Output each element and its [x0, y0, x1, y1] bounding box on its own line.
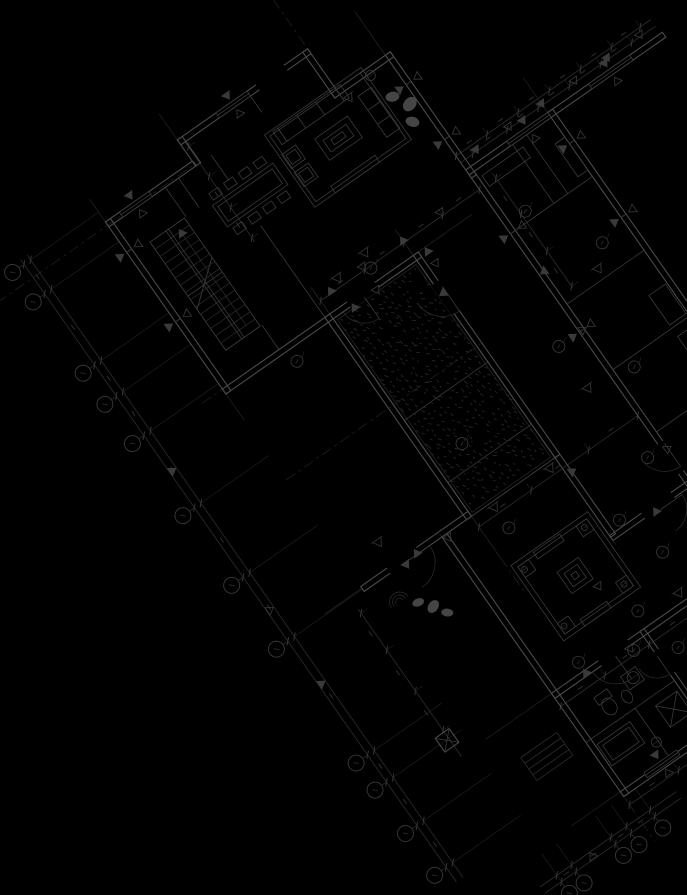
floor-plan-canvas — [0, 0, 687, 895]
canvas-background — [0, 0, 687, 895]
cad-viewport — [0, 0, 687, 895]
